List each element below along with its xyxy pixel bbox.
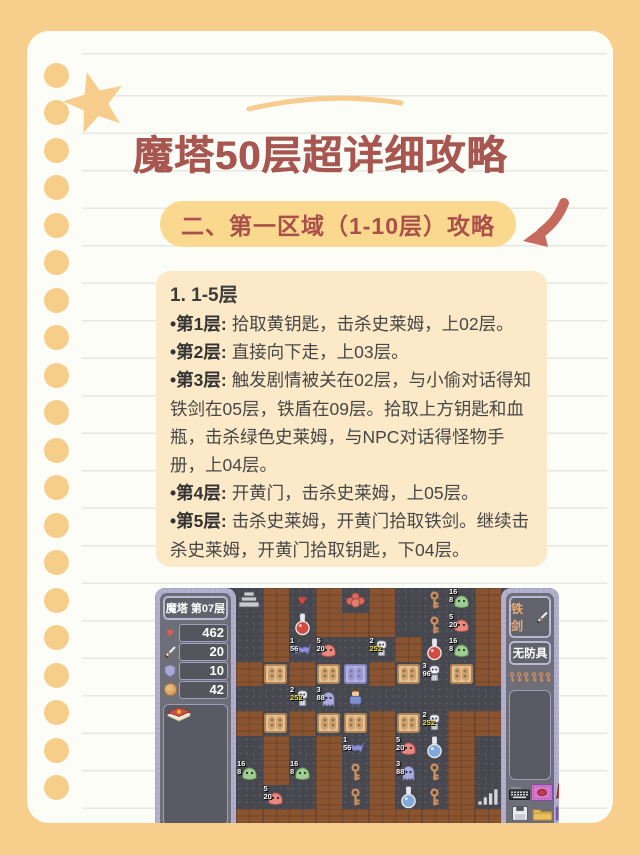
- map-tile: [422, 637, 449, 662]
- stat-value: 42: [179, 681, 228, 699]
- damage-line: 8: [237, 768, 245, 776]
- damage-label: 520: [449, 613, 457, 629]
- hole-punch: [44, 213, 69, 238]
- flower-monster-sprite: [346, 592, 365, 609]
- guide-item: •第3层:触发剧情被关在02层，与小偷对话得知铁剑在05层，铁盾在09层。拾取上…: [170, 366, 533, 479]
- map-tile: [395, 809, 422, 823]
- yellow-key-icon: [538, 670, 544, 684]
- hole-punch: [44, 625, 69, 650]
- map-tile: [422, 760, 449, 785]
- hole-punch: [44, 63, 69, 88]
- stat-row: 10: [163, 661, 228, 680]
- monster-book-icon: [166, 702, 192, 722]
- damage-line: 56: [343, 744, 351, 752]
- map-tile: [395, 711, 422, 736]
- map-tile: 168: [236, 760, 263, 785]
- shop-icon-cell: [531, 784, 553, 806]
- map-tile: [369, 686, 396, 711]
- map-tile: 520: [263, 785, 290, 810]
- map-tile: [395, 662, 422, 687]
- yellow-door: [317, 664, 340, 684]
- map-tile: [395, 686, 422, 711]
- damage-label: 2252: [290, 686, 303, 702]
- map-tile: [395, 588, 422, 613]
- armor-slot: 无防具: [509, 641, 551, 665]
- yellow-key-icon: [509, 670, 515, 684]
- map-tile: 2252: [422, 711, 449, 736]
- red-potion-item: [426, 638, 443, 661]
- guide-item: •第4层:开黄门，击杀史莱姆，上05层。: [170, 479, 533, 507]
- damage-label: 388: [317, 686, 325, 702]
- notebook-card: 魔塔50层超详细攻略 二、第一区域（1-10层）攻略 1. 1-5层 •第1层:…: [27, 31, 613, 823]
- map-tile: 156: [289, 637, 316, 662]
- map-tile: [263, 760, 290, 785]
- map-tile: [236, 785, 263, 810]
- map-tile: [448, 809, 475, 823]
- map-tile: [369, 785, 396, 810]
- map-tile: [316, 613, 343, 638]
- damage-label: 2252: [370, 637, 383, 653]
- stat-value: 462: [179, 624, 228, 642]
- damage-line: 8: [449, 645, 457, 653]
- map-tile: [316, 760, 343, 785]
- stat-row: 20: [163, 642, 228, 661]
- guide-item-text: 开黄门，击杀史莱姆，上05层。: [232, 483, 479, 503]
- yellow-door: [317, 713, 340, 733]
- damage-line: 96: [423, 670, 431, 678]
- map-tile: [289, 711, 316, 736]
- map-tile: [448, 662, 475, 687]
- map-tile: [263, 686, 290, 711]
- map-tile: [289, 736, 316, 761]
- hole-punch: [44, 738, 69, 763]
- map-tile: [395, 637, 422, 662]
- damage-label: 388: [396, 760, 404, 776]
- keyboard-icon-cell: [509, 786, 530, 805]
- floppy-icon: [512, 806, 528, 821]
- blue-door: [344, 664, 367, 684]
- map-tile: [422, 736, 449, 761]
- heart-icon-wrap: ♥: [163, 626, 177, 639]
- map-tile: [448, 785, 475, 810]
- map-tile: [316, 711, 343, 736]
- hole-punch: [44, 400, 69, 425]
- map-tile: [289, 613, 316, 638]
- map-tile: [422, 686, 449, 711]
- red-potion-item: [294, 613, 311, 636]
- weapon-name: 铁剑: [511, 600, 533, 634]
- map-tile: [316, 588, 343, 613]
- map-tile: 520: [448, 613, 475, 638]
- damage-label: 520: [264, 785, 272, 801]
- floor-label: 魔塔 第07层: [163, 596, 228, 620]
- map-tile: [369, 662, 396, 687]
- map-tile: [475, 588, 502, 613]
- map-tile: [475, 613, 502, 638]
- sword-icon: [536, 610, 549, 624]
- guide-item: •第2层:直接向下走，上03层。: [170, 338, 533, 366]
- map-tile: 520: [395, 736, 422, 761]
- folder-icon: [532, 807, 553, 821]
- guide-item-label: •第5层:: [170, 511, 227, 531]
- damage-line: 20: [264, 793, 272, 801]
- map-tile: 168: [289, 760, 316, 785]
- map-tile: [342, 809, 369, 823]
- map-tile: [369, 711, 396, 736]
- stats-list: ♥462201042: [163, 623, 228, 699]
- yellow-door: [264, 713, 287, 733]
- damage-label: 168: [449, 637, 457, 653]
- page-title: 魔塔50层超详细攻略: [27, 123, 613, 181]
- stat-value: 10: [179, 662, 228, 680]
- shield-icon: [164, 664, 176, 677]
- guide-item-text: 拾取黄钥匙，击杀史莱姆，上02层。: [232, 314, 514, 334]
- map-tile: [289, 662, 316, 687]
- armor-name: 无防具: [513, 645, 548, 661]
- map-tile: [369, 736, 396, 761]
- map-tile: 388: [395, 760, 422, 785]
- status-lower-box: [163, 704, 228, 823]
- yellow-door: [264, 664, 287, 684]
- damage-label: 156: [290, 637, 298, 653]
- damage-line: 8: [449, 596, 457, 604]
- guide-items: •第1层:拾取黄钥匙，击杀史莱姆，上02层。•第2层:直接向下走，上03层。•第…: [170, 310, 533, 564]
- boots-icon: [554, 783, 559, 802]
- game-right-panel: 铁剑 无防具: [501, 588, 559, 823]
- map-tile: [316, 662, 343, 687]
- map-tile: [236, 809, 263, 823]
- yellow-key-icon: [545, 670, 551, 684]
- map-tile: [263, 662, 290, 687]
- map-tile: [448, 760, 475, 785]
- map-tile: [475, 809, 502, 823]
- hole-punch: [44, 363, 69, 388]
- inventory-box: [509, 690, 551, 780]
- yellow-key-item: [429, 591, 440, 609]
- damage-label: 168: [237, 760, 245, 776]
- hole-punch: [44, 475, 69, 500]
- map-tile: [263, 809, 290, 823]
- guide-item-text: 直接向下走，上03层。: [232, 342, 409, 362]
- map-tile: [236, 588, 263, 613]
- blue-potion-item: [400, 786, 417, 809]
- hole-punch: [44, 775, 69, 800]
- map-tile: [422, 809, 449, 823]
- yellow-key-icon: [531, 670, 537, 684]
- yellow-key-icon: [523, 670, 529, 684]
- map-tile: [263, 736, 290, 761]
- map-tile: 2252: [369, 637, 396, 662]
- map-tile: [395, 785, 422, 810]
- boots-icon-cell: [554, 783, 559, 807]
- keyboard-icon: [509, 786, 530, 800]
- map-tile: [475, 662, 502, 687]
- map-tile: [236, 662, 263, 687]
- map-tile: [475, 785, 502, 810]
- map-tile: [263, 637, 290, 662]
- coin-icon-wrap: [163, 683, 177, 696]
- yellow-door: [397, 664, 420, 684]
- guide-heading: 1. 1-5层: [170, 282, 533, 310]
- hole-punch: [44, 588, 69, 613]
- guide-item-label: •第1层:: [170, 314, 227, 334]
- hole-punch: [44, 663, 69, 688]
- section-badge: 二、第一区域（1-10层）攻略: [160, 201, 516, 247]
- map-tile: [289, 785, 316, 810]
- damage-line: 20: [317, 645, 325, 653]
- map-tile: [342, 662, 369, 687]
- yellow-key-item: [350, 763, 361, 781]
- shop-icon: [531, 784, 553, 801]
- map-tile: [369, 613, 396, 638]
- floppy-icon-cell: [512, 806, 528, 823]
- damage-label: 396: [423, 662, 431, 678]
- map-tile: [475, 736, 502, 761]
- map-tile: [395, 613, 422, 638]
- map-tile: [342, 613, 369, 638]
- map-tile: [316, 809, 343, 823]
- hole-punch: [44, 700, 69, 725]
- coin-icon: [164, 683, 177, 696]
- map-tile: [236, 686, 263, 711]
- sword-icon-wrap: [163, 645, 177, 658]
- guide-box: 1. 1-5层 •第1层:拾取黄钥匙，击杀史莱姆，上02层。•第2层:直接向下走…: [156, 271, 547, 567]
- map-tile: [342, 588, 369, 613]
- map-tile: [316, 736, 343, 761]
- yellow-key-icon: [516, 670, 522, 684]
- hole-punch: [44, 513, 69, 538]
- game-map: ♥168520156520225216839622523882252156520…: [236, 588, 501, 823]
- map-tile: [263, 613, 290, 638]
- map-tile: [448, 686, 475, 711]
- damage-line: 252: [290, 694, 303, 702]
- map-tile: [342, 760, 369, 785]
- map-tile: [422, 588, 449, 613]
- map-tile: 520: [316, 637, 343, 662]
- sword-icon: [164, 645, 177, 658]
- hole-punch: [44, 100, 69, 125]
- yellow-key-item: [350, 788, 361, 806]
- arrow-icon: [514, 195, 572, 253]
- map-tile: [236, 637, 263, 662]
- damage-line: 88: [396, 768, 404, 776]
- map-tile: [236, 613, 263, 638]
- yellow-key-item: [429, 763, 440, 781]
- map-tile: [422, 613, 449, 638]
- map-tile: [448, 711, 475, 736]
- guide-item-label: •第4层:: [170, 483, 227, 503]
- map-tile: [263, 588, 290, 613]
- map-tile: [369, 588, 396, 613]
- map-tile: 168: [448, 637, 475, 662]
- damage-line: 8: [290, 768, 298, 776]
- yellow-door: [450, 664, 473, 684]
- map-tile: [236, 736, 263, 761]
- map-tile: [422, 785, 449, 810]
- guide-item-label: •第3层:: [170, 370, 227, 390]
- map-tile: [369, 760, 396, 785]
- map-tile: [342, 637, 369, 662]
- hole-punch: [44, 250, 69, 275]
- hole-punch: [44, 325, 69, 350]
- pens-icon: [555, 805, 559, 822]
- damage-label: 168: [449, 588, 457, 604]
- stat-row: 42: [163, 680, 228, 699]
- map-tile: [448, 736, 475, 761]
- map-tile: [289, 809, 316, 823]
- damage-line: 88: [317, 694, 325, 702]
- guide-item: •第1层:拾取黄钥匙，击杀史莱姆，上02层。: [170, 310, 533, 338]
- hole-punch: [44, 288, 69, 313]
- hole-punch: [44, 438, 69, 463]
- map-tile: [316, 785, 343, 810]
- heart-item: ♥: [298, 593, 307, 608]
- map-tile: [475, 637, 502, 662]
- yellow-door: [397, 713, 420, 733]
- weapon-slot: 铁剑: [509, 596, 551, 638]
- stat-row: ♥462: [163, 623, 228, 642]
- map-tile: 168: [448, 588, 475, 613]
- page: { "page": { "bg_color": "#f8ce8c", "titl…: [0, 0, 640, 855]
- stairs-up-icon: [237, 591, 261, 609]
- system-icons: [509, 785, 551, 823]
- hero-sprite: [347, 689, 364, 708]
- damage-label: 520: [317, 637, 325, 653]
- hole-punch: [44, 550, 69, 575]
- map-tile: [475, 686, 502, 711]
- keys-row: [509, 668, 551, 685]
- map-tile: 388: [316, 686, 343, 711]
- map-tile: [475, 760, 502, 785]
- game-screenshot: ♥168520156520225216839622523882252156520…: [155, 588, 559, 823]
- damage-line: 252: [370, 645, 383, 653]
- stairs-bars-icon: [477, 788, 499, 806]
- pens-icon-cell: [555, 805, 559, 823]
- guide-item-label: •第2层:: [170, 342, 227, 362]
- damage-line: 252: [423, 719, 436, 727]
- map-tile: 396: [422, 662, 449, 687]
- map-tile: [236, 711, 263, 736]
- map-tile: [342, 686, 369, 711]
- blue-potion-item: [426, 736, 443, 759]
- shield-icon-wrap: [163, 664, 177, 677]
- map-tile: [263, 711, 290, 736]
- folder-icon-cell: [532, 807, 553, 824]
- yellow-key-item: [429, 788, 440, 806]
- yellow-key-item: [429, 616, 440, 634]
- map-tile: 2252: [289, 686, 316, 711]
- stat-value: 20: [179, 643, 228, 661]
- map-tile: [475, 711, 502, 736]
- map-tile: [342, 785, 369, 810]
- map-tile: [369, 809, 396, 823]
- damage-line: 20: [449, 621, 457, 629]
- damage-label: 520: [396, 736, 404, 752]
- heart-icon: ♥: [166, 626, 174, 639]
- yellow-door: [344, 713, 367, 733]
- damage-line: 20: [396, 744, 404, 752]
- damage-label: 156: [343, 736, 351, 752]
- guide-item: •第5层:击杀史莱姆，开黄门拾取铁剑。继续击杀史莱姆，开黄门拾取钥匙，下04层。: [170, 507, 533, 563]
- damage-line: 56: [290, 645, 298, 653]
- damage-label: 168: [290, 760, 298, 776]
- damage-label: 2252: [423, 711, 436, 727]
- map-tile: 156: [342, 736, 369, 761]
- game-left-panel: 魔塔 第07层 ♥462201042: [155, 588, 236, 823]
- map-tile: ♥: [289, 588, 316, 613]
- map-tile: [342, 711, 369, 736]
